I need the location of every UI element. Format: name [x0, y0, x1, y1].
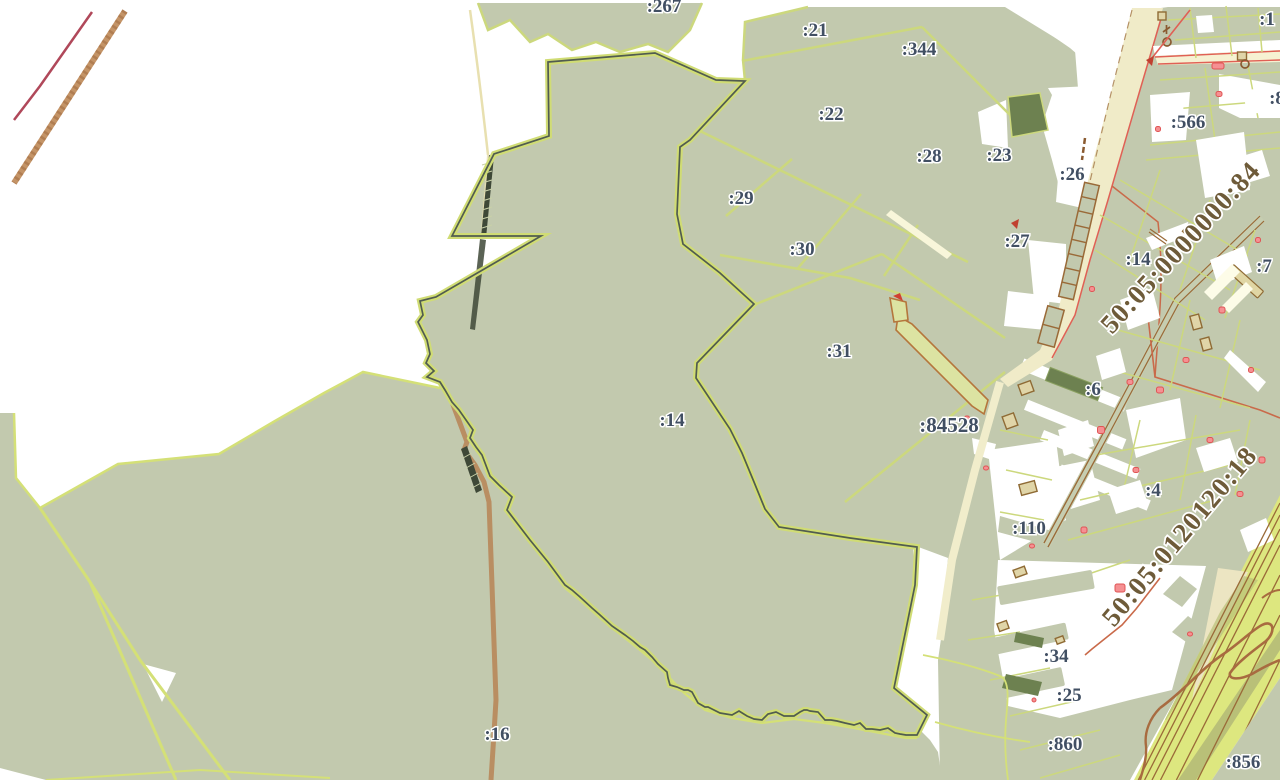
svg-text::860: :860 — [1048, 734, 1083, 755]
svg-text::84528: :84528 — [919, 413, 979, 437]
svg-text::16: :16 — [484, 724, 509, 745]
svg-text::22: :22 — [818, 104, 843, 125]
svg-text::23: :23 — [986, 145, 1011, 166]
svg-text::4: :4 — [1145, 480, 1161, 501]
svg-text::14: :14 — [659, 410, 685, 431]
svg-text::30: :30 — [789, 239, 814, 260]
svg-text::21: :21 — [802, 20, 827, 41]
svg-text::8: :8 — [1269, 88, 1280, 109]
svg-text::566: :566 — [1171, 112, 1206, 133]
svg-text::344: :344 — [902, 39, 937, 60]
svg-text::25: :25 — [1056, 685, 1081, 706]
svg-text::27: :27 — [1004, 231, 1030, 252]
svg-text::29: :29 — [728, 188, 753, 209]
svg-text::1: :1 — [1259, 9, 1275, 30]
svg-text::267: :267 — [647, 0, 682, 17]
svg-text::26: :26 — [1059, 164, 1084, 185]
svg-text::31: :31 — [826, 341, 851, 362]
svg-text::28: :28 — [916, 146, 941, 167]
svg-text::110: :110 — [1012, 518, 1046, 539]
svg-text::34: :34 — [1043, 646, 1069, 667]
svg-text::856: :856 — [1226, 752, 1261, 773]
svg-text::6: :6 — [1085, 379, 1101, 400]
svg-text::7: :7 — [1256, 256, 1272, 277]
